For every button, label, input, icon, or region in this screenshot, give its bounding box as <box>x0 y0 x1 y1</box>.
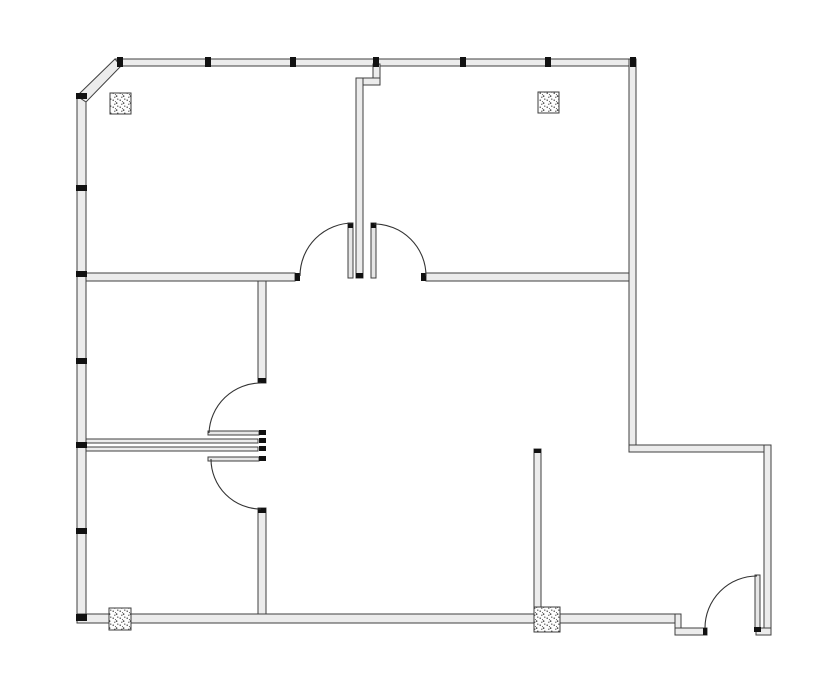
interior-wall-corridor-upper <box>86 439 258 443</box>
door-leaf-west-lower <box>208 457 259 461</box>
exterior-wall-bottom-main <box>77 614 681 623</box>
mullion-tick-top-4 <box>373 57 379 67</box>
mullion-tick-top-1 <box>117 57 123 67</box>
column-top-left <box>110 93 131 114</box>
mullion-tick-left-6 <box>76 528 87 534</box>
exterior-wall-bottom-lower-left <box>675 628 707 635</box>
interior-wall-west-vertical-lower <box>258 508 266 614</box>
interior-wall-west-vertical-upper <box>258 281 266 383</box>
hinge-cap-west-4 <box>259 456 266 461</box>
floor-plan <box>0 0 835 678</box>
interior-wall-mid-horizontal-left <box>86 273 295 281</box>
door-leaf-cap-top-left <box>348 223 353 228</box>
mullion-tick-left-3 <box>76 271 87 277</box>
interior-wall-corridor-lower <box>86 447 258 451</box>
mullion-tick-top-6 <box>545 57 551 67</box>
door-jamb-mid-wall-left <box>295 273 300 281</box>
column-top-right <box>538 92 559 113</box>
wall-end-cap-bottom-middle <box>534 449 541 453</box>
mullion-tick-left-4 <box>76 358 87 364</box>
wall-end-cap-central <box>356 273 363 278</box>
door-leaf-west-upper <box>208 431 259 435</box>
mullion-tick-top-3 <box>290 57 296 67</box>
interior-wall-central-vertical <box>356 78 363 278</box>
exterior-wall-step-east <box>629 445 771 452</box>
hinge-cap-bottom-right <box>754 627 761 632</box>
exterior-wall-right-upper <box>629 59 636 452</box>
mullion-tick-left-corner <box>76 614 87 621</box>
door-jamb-bottom-right <box>703 628 707 635</box>
exterior-wall-right-lower <box>764 445 771 635</box>
hinge-cap-west-3 <box>259 446 266 451</box>
mullion-tick-left-5 <box>76 442 87 448</box>
interior-wall-bottom-middle-vertical <box>534 449 541 607</box>
mullion-tick-top-5 <box>460 57 466 67</box>
column-bottom-left <box>109 608 131 630</box>
mullion-tick-top-corner <box>630 57 636 67</box>
door-leaf-top-left-room <box>348 223 353 278</box>
hinge-cap-west-1 <box>259 430 266 435</box>
floor-plan-canvas <box>0 0 835 678</box>
door-leaf-top-right-room <box>371 223 376 278</box>
mullion-tick-top-2 <box>205 57 211 67</box>
column-bottom-middle <box>534 607 560 632</box>
mullion-tick-left-1 <box>76 93 87 99</box>
door-jamb-mid-wall-right <box>421 273 426 281</box>
door-leaf-bottom-right <box>755 575 760 628</box>
mullion-tick-left-2 <box>76 185 87 191</box>
hinge-cap-west-2 <box>259 438 266 443</box>
interior-wall-mid-horizontal-right <box>426 273 629 281</box>
wall-end-cap-west-upper <box>258 378 266 383</box>
